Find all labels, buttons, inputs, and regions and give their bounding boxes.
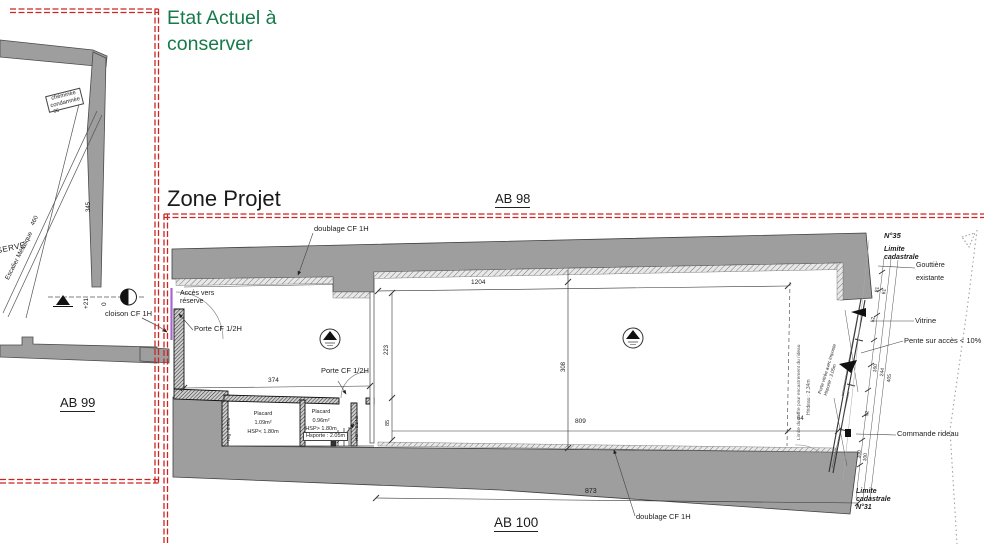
- cloison-label: cloison CF 1H: [105, 309, 152, 318]
- reserve-west-wall: [174, 309, 184, 389]
- parcel-ab99-text: AB 99: [60, 395, 95, 412]
- placard1-label: Placard 1.09m² HSP< 1.80m: [236, 410, 290, 436]
- coffre-rideau-line: [787, 282, 790, 446]
- porte-cf-label-1: Porte CF 1/2H: [194, 324, 242, 333]
- parcel-ab100-text: AB 100: [494, 515, 538, 532]
- dim-244: 244: [879, 368, 886, 377]
- vitrine-label: Vitrine: [915, 316, 936, 325]
- room-boundary-line: [26, 104, 79, 318]
- gouttiere-label: Gouttière existante: [916, 260, 945, 285]
- parcel-ab98-text: AB 98: [495, 191, 530, 208]
- cadastral-dotted-line: [950, 230, 977, 544]
- roller-control-box: [845, 429, 851, 437]
- hsp-right-label: HSP : 2.24m: [354, 416, 359, 441]
- limite-cadastrale-bottom: Limite cadastrale N°31: [856, 488, 891, 512]
- gouttiere-leader: [878, 266, 915, 268]
- coffre-rideau-label: Limite du coffre pour encastrement du ri…: [797, 345, 803, 440]
- pente-leader: [861, 341, 903, 353]
- acces-reserve-label: Accès vers réserve: [180, 290, 214, 306]
- n35-label: N°35: [884, 231, 901, 240]
- dim-345: 345: [86, 202, 93, 212]
- floor-plan-drawing: Etat Actuel à conserver chéminée condamn…: [0, 0, 984, 544]
- dim-374: 374: [268, 377, 279, 385]
- commande-rideau-label: Commande rideau: [897, 429, 959, 438]
- dim-81: 81: [874, 286, 881, 292]
- etat-actuel-title: Etat Actuel à conserver: [167, 5, 277, 58]
- doublage-strip-right-corner: [837, 263, 843, 300]
- partition-wall: [370, 292, 374, 443]
- stair-stringer: [3, 111, 97, 313]
- zone-level-markers: [320, 328, 643, 349]
- porte2-leader: [338, 381, 346, 394]
- left-plan-lines: [3, 104, 146, 318]
- door-arc: [341, 372, 367, 398]
- zone-projet-title: Zone Projet: [167, 186, 281, 212]
- wall-right-band: [87, 52, 106, 287]
- placard2-label: Placard 0.96m² HSP> 1.80m: [297, 408, 345, 434]
- dim-85: 85: [385, 420, 392, 426]
- stair-stringer: [8, 115, 102, 317]
- direction-arrow-icon: [851, 308, 866, 317]
- dim-52a: 52: [870, 316, 877, 322]
- dim-873: 873: [585, 488, 597, 496]
- limite-cadastrale-top: Limite cadastrale: [884, 246, 919, 261]
- dim-160: 160: [872, 364, 879, 373]
- parcel-ab98: AB 98: [495, 191, 530, 207]
- dim-61: 61: [881, 288, 888, 294]
- level-marker-icon: [56, 295, 70, 305]
- plan-linework: [0, 0, 984, 544]
- wall-bottom-band: [0, 337, 157, 363]
- htg-label: Htg : 0.97m: [226, 418, 231, 441]
- hrideau-label: Hrideau : 2.34m: [806, 379, 812, 415]
- level-plus21: +21: [83, 298, 91, 309]
- commande-leader: [856, 434, 896, 435]
- dim-308: 308: [561, 362, 568, 372]
- placard-top-wall: [224, 395, 339, 404]
- parcel-ab100: AB 100: [494, 515, 538, 531]
- doublage-bottom-label: doublage CF 1H: [636, 512, 691, 521]
- pente-label: Pente sur accès < 10%: [904, 336, 981, 345]
- dim-06: 06: [53, 108, 60, 115]
- left-level-markers: [53, 289, 137, 307]
- dim-52b: 52: [864, 410, 871, 416]
- dim-223: 223: [384, 345, 391, 355]
- level-zero: 0: [101, 302, 109, 306]
- dim-405: 405: [886, 374, 893, 383]
- porte-cf-label-2: Porte CF 1/2H: [321, 366, 369, 375]
- dim-1204: 1204: [471, 279, 485, 287]
- doublage-top-label: doublage CF 1H: [314, 224, 369, 233]
- wall-top-band: [0, 40, 107, 67]
- dim-809: 809: [575, 418, 586, 426]
- doublage-strip-pier: [333, 292, 374, 298]
- parcel-ab99: AB 99: [60, 395, 95, 411]
- reserve-south-wall: [174, 389, 228, 401]
- dim-100b: 100: [862, 453, 869, 462]
